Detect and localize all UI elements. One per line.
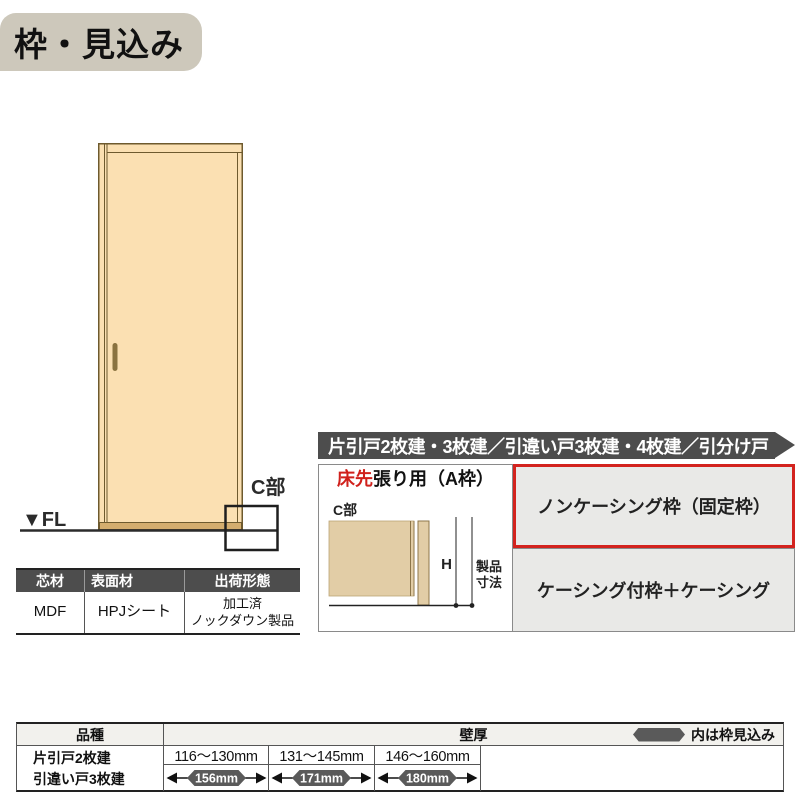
product-dimension-dot (470, 603, 475, 608)
product-size-line2: 寸法 (476, 575, 502, 590)
arrow-right-icon (361, 773, 372, 784)
door-bottom-rail (100, 523, 242, 530)
material-table: 芯材 表面材 出荷形態 MDF HPJシート 加工済 ノックダウン製品 (16, 568, 300, 635)
badge-arrow-svg-2: 171mm (270, 765, 373, 791)
option-noncasing-frame: ノンケーシング枠（固定枠） (513, 464, 795, 548)
frame-depth-legend: 内は枠見込み (633, 724, 775, 745)
option-noncasing-label: ノンケーシング枠（固定枠） (537, 493, 771, 519)
wall-column-3: 146～160mm 180mm (375, 746, 481, 791)
wall-thickness-label: 壁厚 (460, 725, 488, 745)
wall-range-3: 146～160mm (375, 746, 480, 765)
value-core-material: MDF (16, 592, 85, 633)
frame-strip-rect (418, 521, 429, 605)
spec-table: 品種 壁厚 内は枠見込み 片引戸2枚建 引違い戸3枚建 116～130mm (16, 722, 784, 792)
badge-arrow-svg-3: 180mm (376, 765, 479, 791)
frame-panel-header-text: 片引戸2枚建・3枚建／引違い戸3枚建・4枚建／引分け戸 (328, 433, 769, 459)
arrow-right-icon (467, 773, 478, 784)
badge-arrow-svg-1: 156mm (165, 765, 268, 791)
frame-type-panel: 片引戸2枚建・3枚建／引違い戸3枚建・4枚建／引分け戸 床先張り用（A枠） C部… (318, 428, 796, 634)
wall-section-rect (329, 521, 414, 596)
h-dimension-dot (454, 603, 459, 608)
h-label: H (441, 556, 452, 573)
header-surface-material: 表面材 (85, 570, 185, 592)
page-title-text: 枠・見込み (14, 18, 184, 66)
diagram-c-label: C部 (333, 502, 357, 518)
option-casing-label: ケーシング付枠＋ケーシング (537, 577, 770, 603)
spec-table-body: 片引戸2枚建 引違い戸3枚建 116～130mm 156mm 131～145mm (17, 746, 783, 791)
value-surface-material: HPJシート (85, 592, 185, 633)
frame-depth-badge-3: 180mm (375, 765, 480, 791)
shipping-line1: 加工済 (223, 596, 262, 612)
frame-section-diagram: C部 H 製品 寸法 (318, 490, 513, 632)
spec-table-empty-area (481, 746, 783, 791)
frame-panel-header-bar: 片引戸2枚建・3枚建／引違い戸3枚建・4枚建／引分け戸 (318, 432, 775, 459)
product-type-cell: 片引戸2枚建 引違い戸3枚建 (17, 746, 164, 791)
frame-depth-badge-2: 171mm (269, 765, 374, 791)
frame-depth-value-2: 171mm (300, 772, 343, 786)
header-product-type: 品種 (17, 724, 164, 745)
floor-type-cell: 床先張り用（A枠） (318, 464, 513, 491)
hexagon-icon (633, 728, 685, 742)
value-shipping-form: 加工済 ノックダウン製品 (185, 592, 300, 633)
floor-type-red-text: 床先 (337, 465, 373, 491)
page-title: 枠・見込み (0, 13, 202, 71)
material-table-row: MDF HPJシート 加工済 ノックダウン製品 (16, 592, 300, 633)
wall-column-2: 131～145mm 171mm (269, 746, 375, 791)
catalog-page: 枠・見込み ▼FL C部 芯材 表面材 出荷形態 MDF HPJシート 加工済 (0, 0, 800, 800)
fl-label: ▼FL (22, 509, 66, 531)
frame-depth-badge-1: 156mm (164, 765, 268, 791)
product-size-line1: 製品 (475, 559, 502, 574)
shipping-line2: ノックダウン製品 (191, 613, 294, 629)
wall-range-1: 116～130mm (164, 746, 268, 765)
arrow-left-icon (378, 773, 389, 784)
spec-table-header: 品種 壁厚 内は枠見込み (17, 724, 783, 746)
header-wall-thickness: 壁厚 内は枠見込み (164, 724, 783, 745)
c-section-label: C部 (251, 475, 285, 499)
arrow-left-icon (166, 773, 177, 784)
frame-depth-value-1: 156mm (194, 772, 237, 786)
frame-depth-value-3: 180mm (406, 772, 449, 786)
product-type-1: 片引戸2枚建 (33, 749, 163, 767)
arrow-left-icon (272, 773, 283, 784)
door-panel (99, 144, 243, 530)
legend-text: 内は枠見込み (691, 725, 775, 745)
floor-type-rest-text: 張り用（A枠） (373, 465, 494, 491)
door-handle (113, 343, 118, 371)
header-core-material: 芯材 (16, 570, 85, 592)
product-type-2: 引違い戸3枚建 (33, 770, 163, 788)
option-casing-frame: ケーシング付枠＋ケーシング (513, 548, 795, 632)
arrow-right-icon (256, 773, 267, 784)
frame-section-svg: C部 H 製品 寸法 (319, 490, 512, 630)
wall-range-2: 131～145mm (269, 746, 374, 765)
header-bar-arrow-tip (775, 432, 795, 458)
door-illustration: ▼FL C部 (0, 130, 320, 570)
header-shipping-form: 出荷形態 (185, 570, 300, 592)
wall-column-1: 116～130mm 156mm (164, 746, 269, 791)
material-table-header: 芯材 表面材 出荷形態 (16, 570, 300, 592)
